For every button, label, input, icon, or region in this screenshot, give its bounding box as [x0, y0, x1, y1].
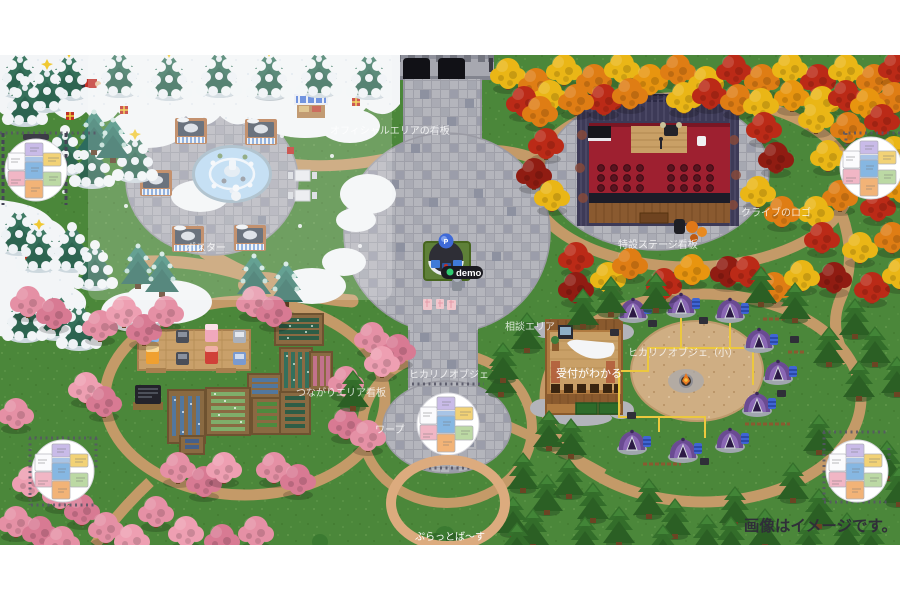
svg-text:P: P — [444, 239, 449, 246]
svg-text:ワープ: ワープ — [375, 424, 404, 436]
svg-text:ヒカリノオブジェ: ヒカリノオブジェ — [409, 368, 489, 381]
svg-text:クライブのロゴ: クライブのロゴ — [741, 206, 811, 219]
svg-text:つながりエリア看板: つながりエリア看板 — [296, 386, 386, 399]
svg-text:オフィシャルエリアの看板: オフィシャルエリアの看板 — [330, 124, 450, 137]
svg-text:ぷらっとば〜す: ぷらっとば〜す — [415, 531, 485, 543]
svg-text:ポスター: ポスター — [186, 242, 226, 254]
svg-text:画像はイメージです。: 画像はイメージです。 — [744, 516, 897, 535]
svg-text:ヒカリノオブジェ（小）: ヒカリノオブジェ（小） — [628, 346, 738, 359]
svg-text:相談エリア: 相談エリア — [505, 320, 555, 333]
svg-text:特設ステージ看板: 特設ステージ看板 — [618, 238, 698, 251]
svg-text:demo: demo — [456, 268, 482, 279]
svg-text:受付がわかる: 受付がわかる — [556, 366, 622, 380]
